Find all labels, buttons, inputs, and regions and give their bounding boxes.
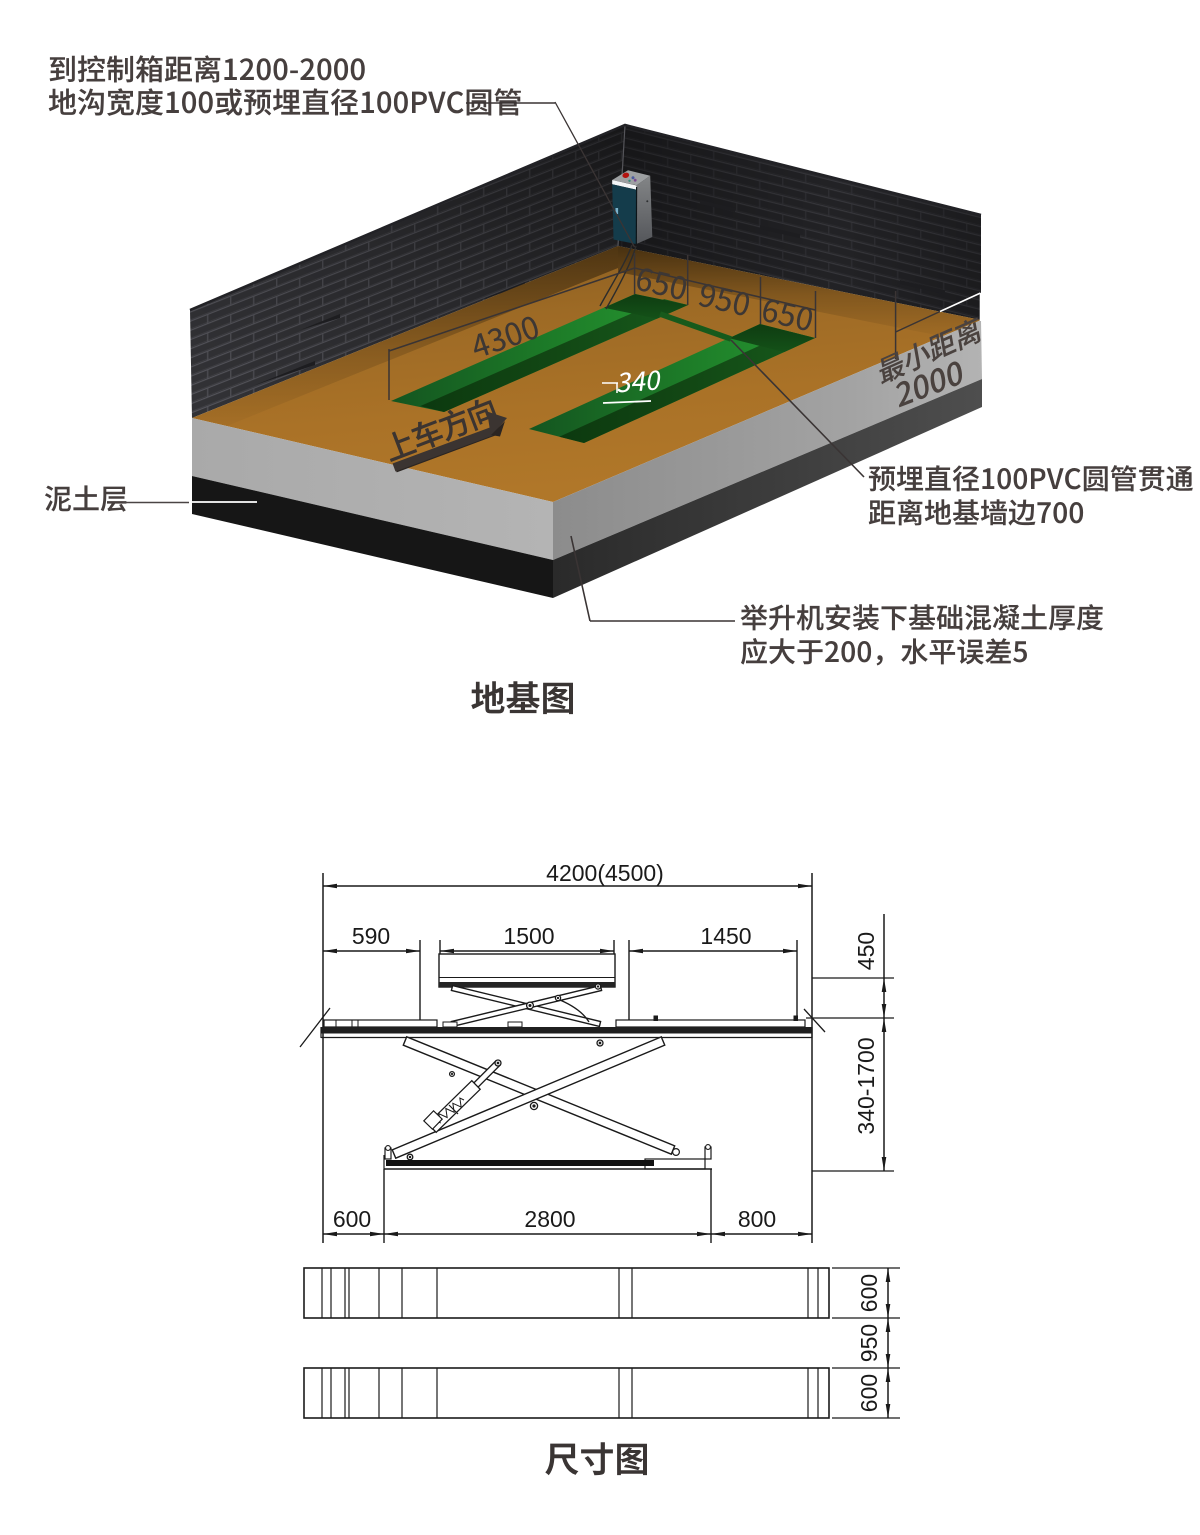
svg-text:4200(4500): 4200(4500) [546, 860, 664, 886]
svg-text:600: 600 [856, 1374, 882, 1412]
svg-text:2800: 2800 [524, 1206, 575, 1232]
svg-text:600: 600 [856, 1274, 882, 1312]
svg-text:450: 450 [853, 932, 879, 970]
svg-text:590: 590 [352, 923, 390, 949]
svg-text:600: 600 [333, 1206, 371, 1232]
svg-text:950: 950 [856, 1324, 882, 1362]
svg-text:1450: 1450 [700, 923, 751, 949]
svg-text:340-1700: 340-1700 [853, 1037, 879, 1134]
svg-text:1500: 1500 [503, 923, 554, 949]
svg-text:800: 800 [738, 1206, 776, 1232]
